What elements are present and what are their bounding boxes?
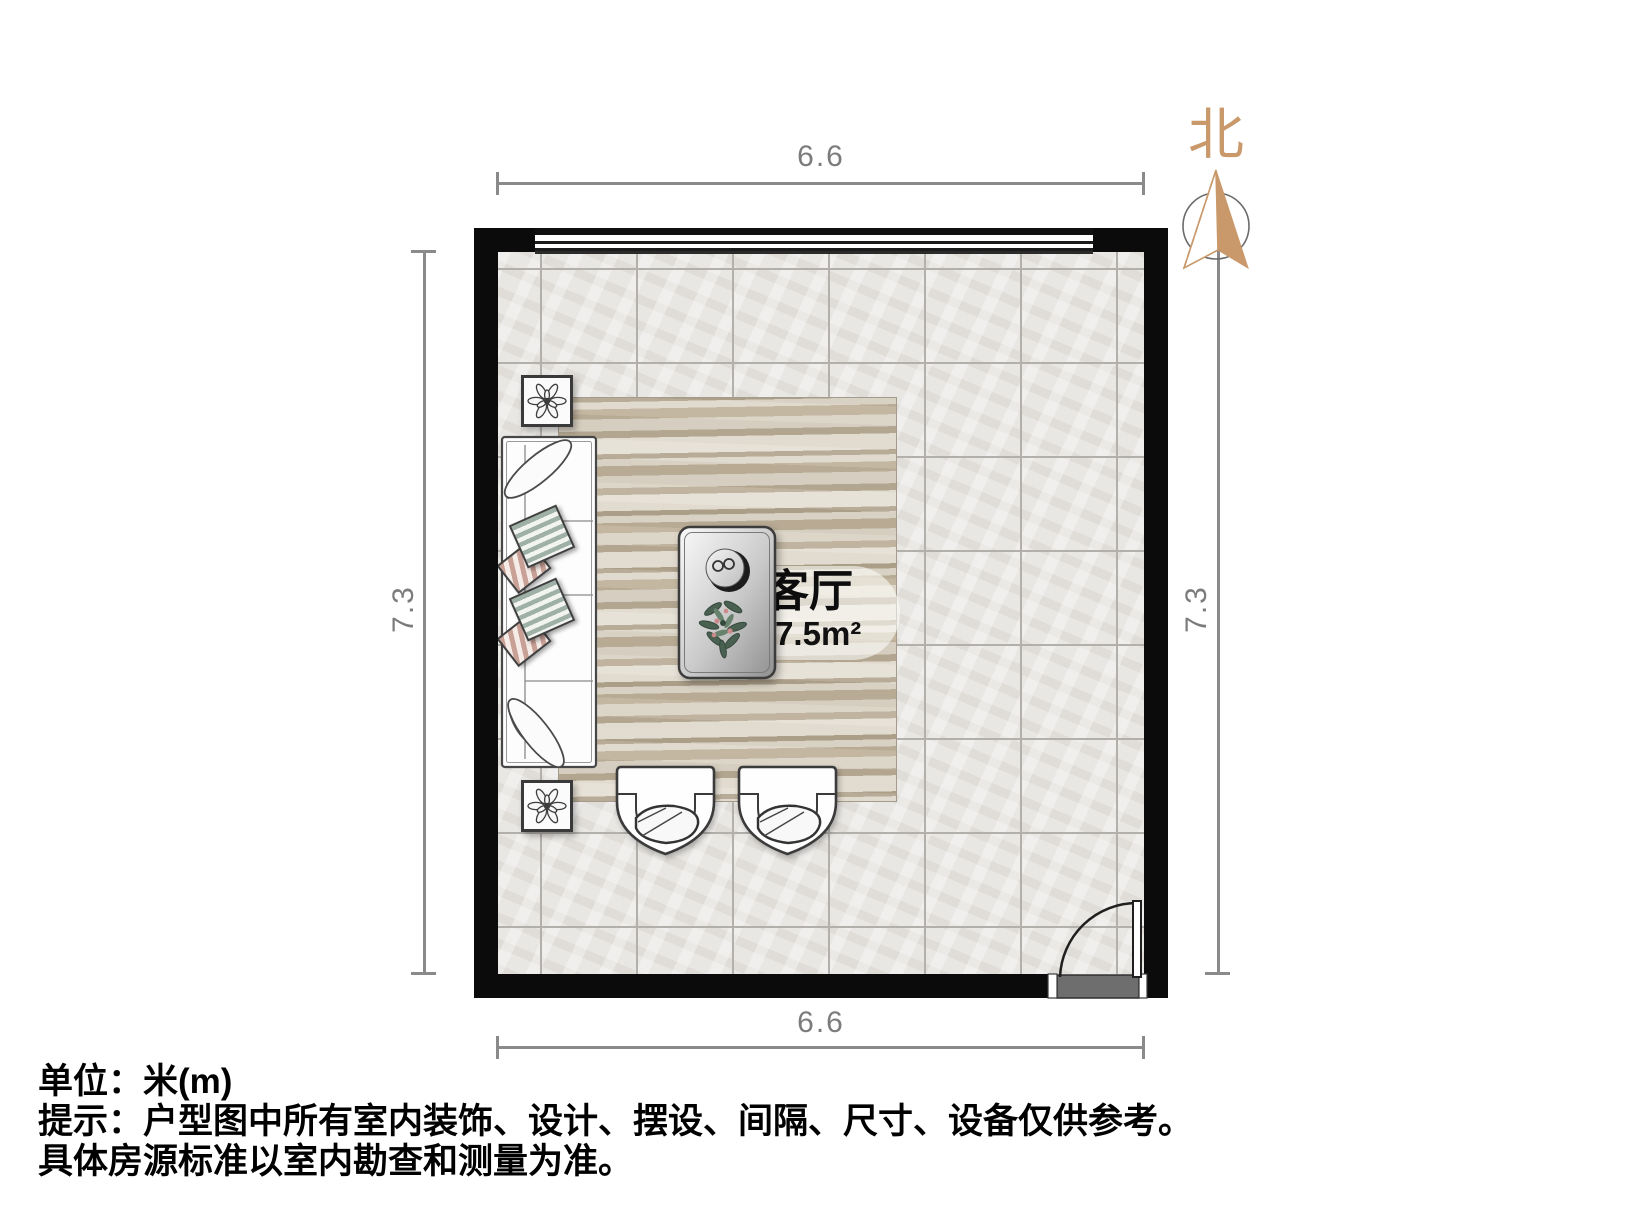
room-walls bbox=[474, 228, 1168, 998]
dimension-label-left: 7.3 bbox=[387, 569, 421, 649]
dimension-line-right bbox=[1217, 248, 1220, 975]
dimension-line-top bbox=[498, 182, 1145, 185]
north-label: 北 bbox=[1186, 90, 1246, 171]
door-jamb bbox=[1048, 974, 1057, 998]
footer-notes: 单位：米(m) 提示：户型图中所有室内装饰、设计、摆设、间隔、尺寸、设备仅供参考… bbox=[38, 1062, 1193, 1182]
dimension-tick bbox=[411, 972, 436, 975]
window-pane-line bbox=[535, 241, 1093, 244]
disclaimer-line-1: 提示：户型图中所有室内装饰、设计、摆设、间隔、尺寸、设备仅供参考。 bbox=[38, 1102, 1193, 1142]
door-swing-arc bbox=[1060, 903, 1137, 977]
dimension-line-left bbox=[423, 252, 426, 975]
dimension-tick bbox=[1205, 972, 1230, 975]
north-compass-icon bbox=[1174, 164, 1258, 274]
door bbox=[1040, 890, 1152, 1002]
door-threshold bbox=[1057, 975, 1139, 998]
dimension-tick bbox=[496, 172, 499, 195]
dimension-tick bbox=[1142, 1036, 1145, 1059]
floor-plan: 6.6 6.6 7.3 7.3 北 bbox=[0, 0, 1642, 1232]
dimension-label-right: 7.3 bbox=[1180, 569, 1214, 649]
dimension-tick bbox=[1142, 172, 1145, 195]
dimension-tick bbox=[411, 250, 436, 253]
unit-note: 单位：米(m) bbox=[38, 1062, 1193, 1102]
dimension-tick bbox=[496, 1036, 499, 1059]
window bbox=[535, 228, 1093, 254]
dimension-label-bottom: 6.6 bbox=[771, 1006, 871, 1040]
dimension-label-top: 6.6 bbox=[771, 140, 871, 174]
window-pane-line bbox=[535, 248, 1093, 251]
dimension-line-bottom bbox=[498, 1046, 1145, 1049]
disclaimer-line-2: 具体房源标准以室内勘查和测量为准。 bbox=[38, 1142, 1193, 1182]
door-leaf bbox=[1133, 901, 1141, 977]
